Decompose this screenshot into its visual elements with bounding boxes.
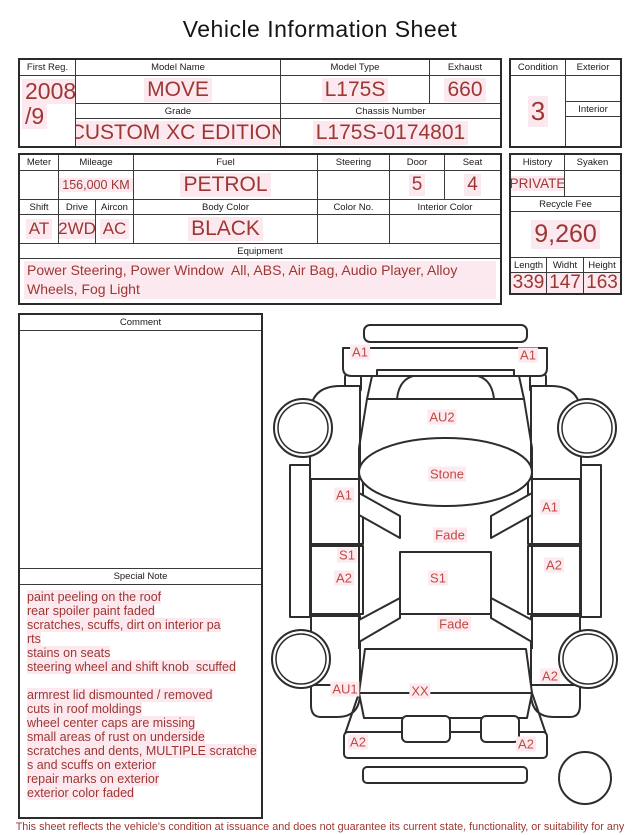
special-note-line: wheel center caps are missing: [27, 716, 261, 730]
front-panel: [343, 348, 547, 376]
vehicle-specs-table: Meter Mileage Fuel Steering Door Seat 15…: [18, 153, 502, 305]
syaken-value: [565, 171, 620, 196]
door-value: 5: [389, 170, 444, 199]
rear-hatch: [359, 649, 532, 693]
damage-code-label: Fade: [433, 528, 467, 543]
rear-section: [344, 649, 547, 783]
color-no-header: Color No.: [317, 199, 389, 214]
special-note-line: cuts in roof moldings: [27, 702, 261, 716]
drive-header: Drive: [58, 199, 95, 214]
damage-code-label: A2: [540, 669, 560, 684]
condition-header: Condition: [511, 60, 565, 75]
exhaust-value: 660: [429, 75, 500, 103]
right-wiper: [478, 376, 494, 399]
length-header: Length: [511, 258, 547, 272]
body-color-header: Body Color: [133, 199, 317, 214]
left-tail-light: [402, 716, 450, 742]
aircon-value: AC: [95, 214, 133, 243]
equipment-header: Equipment: [20, 243, 500, 258]
special-note-line: s and scuffs on exterior: [27, 758, 261, 772]
first-reg-value: 2008 /9: [20, 75, 75, 146]
special-note-line: armrest lid dismounted / removed: [27, 688, 261, 702]
damage-code-label: S1: [337, 548, 357, 563]
seat-value: 4: [444, 170, 500, 199]
recycle-fee-value: 9,260: [511, 212, 620, 257]
exterior-header: Exterior: [565, 60, 620, 75]
mileage-header: Mileage: [58, 155, 133, 170]
model-name-header: Model Name: [75, 60, 280, 75]
left-wiper: [397, 376, 413, 399]
special-note-line: rts: [27, 632, 261, 646]
steering-value: [317, 170, 389, 199]
interior-value: [565, 116, 620, 146]
spare-tire: [559, 752, 611, 804]
length-value: 339: [511, 273, 547, 293]
height-header: Height: [584, 258, 620, 272]
chassis-number-value: L175S-0174801: [280, 118, 500, 146]
first-reg-header: First Reg.: [20, 60, 75, 75]
damage-code-label: AU2: [427, 410, 456, 425]
aircon-header: Aircon: [95, 199, 133, 214]
recycle-fee-header: Recycle Fee: [511, 197, 620, 211]
fuel-value: PETROL: [133, 170, 317, 199]
chassis-number-header: Chassis Number: [280, 103, 500, 118]
model-name-value: MOVE: [75, 75, 280, 103]
interior-color-header: Interior Color: [389, 199, 500, 214]
special-note-line: steering wheel and shift knob scuffed: [27, 660, 261, 674]
damage-code-label: A2: [334, 571, 354, 586]
history-header-row: History Syaken: [511, 155, 620, 170]
special-note-line: repair marks on exterior: [27, 772, 261, 786]
right-rear-door: [528, 546, 580, 614]
special-note-line: paint peeling on the roof: [27, 590, 261, 604]
exterior-value: [565, 75, 620, 101]
damage-code-label: XX: [409, 684, 430, 699]
interior-color-value: [389, 214, 500, 243]
damage-code-label: S1: [428, 571, 448, 586]
comment-section: Comment Special Note paint peeling on th…: [18, 313, 263, 819]
syaken-header: Syaken: [565, 155, 620, 170]
drive-value: 2WD: [58, 214, 95, 243]
special-note-line: stains on seats: [27, 646, 261, 660]
damage-code-label: A1: [540, 500, 560, 515]
special-note-header: Special Note: [20, 568, 261, 585]
body-color-value: BLACK: [133, 214, 317, 243]
disclaimer-text: This sheet reflects the vehicle's condit…: [0, 821, 640, 835]
history-value-row: PRIVATE: [511, 170, 620, 196]
special-note-line: [27, 674, 261, 688]
exhaust-header: Exhaust: [429, 60, 500, 75]
recycle-fee-header-row: Recycle Fee: [511, 196, 620, 211]
damage-code-label: AU1: [330, 682, 359, 697]
first-reg-year: 2008: [22, 79, 75, 104]
first-reg-month: /9: [22, 104, 47, 129]
dimensions-value-row: 339 147 163: [511, 272, 620, 293]
model-type-header: Model Type: [280, 60, 429, 75]
special-note-line: scratches, scuffs, dirt on interior pa: [27, 618, 261, 632]
mileage-value: 156,000 KM: [58, 170, 133, 199]
special-note-line: rear spoiler paint faded: [27, 604, 261, 618]
special-note-body: paint peeling on the roofrear spoiler pa…: [20, 585, 261, 800]
meter-value: [20, 170, 58, 199]
history-value: PRIVATE: [511, 171, 565, 196]
damage-code-label: A1: [350, 345, 370, 360]
page-title: Vehicle Information Sheet: [0, 16, 640, 43]
seat-header: Seat: [444, 155, 500, 170]
damage-code-label: A2: [516, 737, 536, 752]
door-header: Door: [389, 155, 444, 170]
vehicle-information-sheet: Vehicle Information Sheet First Reg. 200…: [0, 0, 640, 835]
comment-body: [20, 331, 261, 568]
recycle-fee-value-row: 9,260: [511, 211, 620, 257]
model-type-value: L175S: [280, 75, 429, 103]
interior-header: Interior: [565, 101, 620, 116]
grade-header: Grade: [75, 103, 280, 118]
damage-code-label: A1: [518, 348, 538, 363]
damage-code-label: A2: [348, 735, 368, 750]
shift-header: Shift: [20, 199, 58, 214]
equipment-value: Power Steering, Power Window All, ABS, A…: [20, 258, 500, 303]
special-note-line: exterior color faded: [27, 786, 261, 800]
fuel-header: Fuel: [133, 155, 317, 170]
condition-value: 3: [511, 75, 565, 146]
right-tail-light: [481, 716, 519, 742]
shift-value: AT: [20, 214, 58, 243]
damage-code-label: Fade: [437, 617, 471, 632]
special-note-line: small areas of rust on underside: [27, 730, 261, 744]
condition-table: Condition 3 Exterior Interior: [509, 58, 622, 148]
grade-value: CUSTOM XC EDITION: [75, 118, 280, 146]
vehicle-identity-table: First Reg. 2008 /9 Model Name MOVE Grade…: [18, 58, 502, 148]
damage-code-label: A2: [544, 558, 564, 573]
damage-code-label: A1: [334, 488, 354, 503]
meter-header: Meter: [20, 155, 58, 170]
history-table: History Syaken PRIVATE Recycle Fee 9,260…: [509, 153, 622, 295]
width-value: 147: [547, 273, 584, 293]
steering-header: Steering: [317, 155, 389, 170]
height-value: 163: [584, 273, 620, 293]
damage-code-label: Stone: [428, 467, 466, 482]
center-body: [343, 325, 547, 649]
comment-header: Comment: [20, 315, 261, 331]
car-damage-diagram: A1A1AU2StoneA1A1FadeS1A2A2S1FadeAU1XXA2A…: [265, 308, 640, 820]
dimensions-header-row: Length Widht Height: [511, 257, 620, 272]
width-header: Widht: [547, 258, 584, 272]
history-header: History: [511, 155, 565, 170]
car-outline-svg: [265, 308, 640, 820]
front-bumper: [364, 325, 527, 342]
color-no-value: [317, 214, 389, 243]
special-note-line: scratches and dents, MULTIPLE scratche: [27, 744, 261, 758]
